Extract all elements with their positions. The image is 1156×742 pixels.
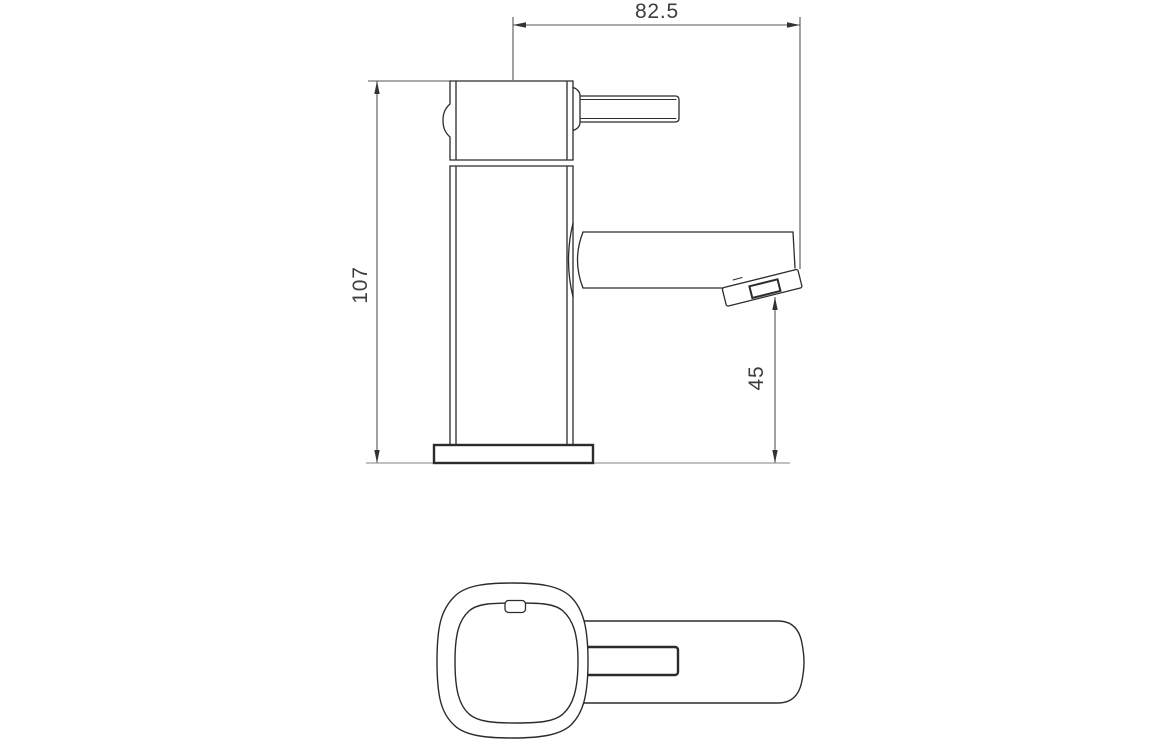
dimension-spout-height-label: 45 [745,366,768,391]
plan-knob-notch [505,601,526,613]
spout-tip-edge [793,232,795,268]
tap-plan-view [437,583,804,738]
aerator-outline [722,269,802,306]
spout-flange-arc-inner [578,232,584,288]
base-plate [434,445,593,463]
arrow-spout-top [772,297,777,310]
arrow-width-left [513,22,526,27]
dimension-width-label: 82.5 [635,0,679,23]
aerator-crease-line [733,278,742,281]
arrow-height-top [374,81,379,94]
dimension-lines [368,17,800,463]
arrow-height-bottom [374,450,379,463]
handle-taper [573,88,580,131]
spout-flange-arc-outer [569,223,574,297]
dimension-labels: 82.5 107 45 [349,0,768,390]
dimension-height-label: 107 [349,266,372,303]
aerator [722,269,802,306]
dimension-arrows [374,22,800,463]
technical-drawing-svg: 82.5 107 45 [0,0,1156,742]
head-left-edge-with-bump [443,81,450,160]
arrow-spout-bottom [772,450,777,463]
tap-side-view [434,81,802,463]
drawing-sheet: 82.5 107 45 [0,0,1156,742]
arrow-width-right [787,22,800,27]
